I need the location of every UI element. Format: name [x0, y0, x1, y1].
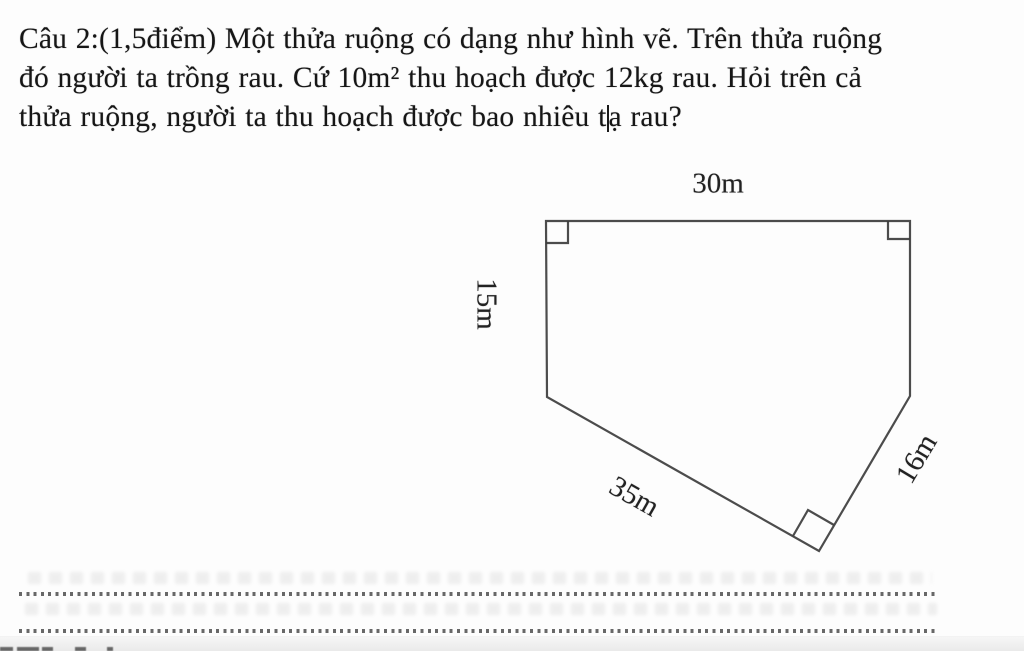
dimension-label-top: 30m: [692, 168, 744, 201]
page-edge-text-artifact: [107, 647, 113, 651]
document-page: Câu 2:(1,5điểm) Một thửa ruộng có dạng n…: [0, 0, 1024, 651]
page-edge-text-artifact: [42, 647, 53, 651]
page-edge-text-artifact: [75, 647, 86, 651]
right-angle-mark-top-left: [546, 221, 568, 243]
page-edge-strip: [0, 636, 1024, 651]
page-edge-text-artifact: [0, 647, 13, 651]
field-figure: [0, 0, 1024, 651]
answer-dotted-line: [19, 629, 939, 633]
field-outline: [546, 221, 910, 551]
right-angle-mark-bottom: [793, 510, 834, 536]
page-edge-text-artifact: [17, 647, 39, 651]
right-angle-mark-top-right: [888, 221, 910, 239]
bleed-through-text-row: [28, 572, 932, 584]
answer-dotted-line: [19, 592, 939, 596]
bleed-through-text-row: [25, 603, 937, 615]
dimension-label-left: 15m: [470, 278, 503, 330]
